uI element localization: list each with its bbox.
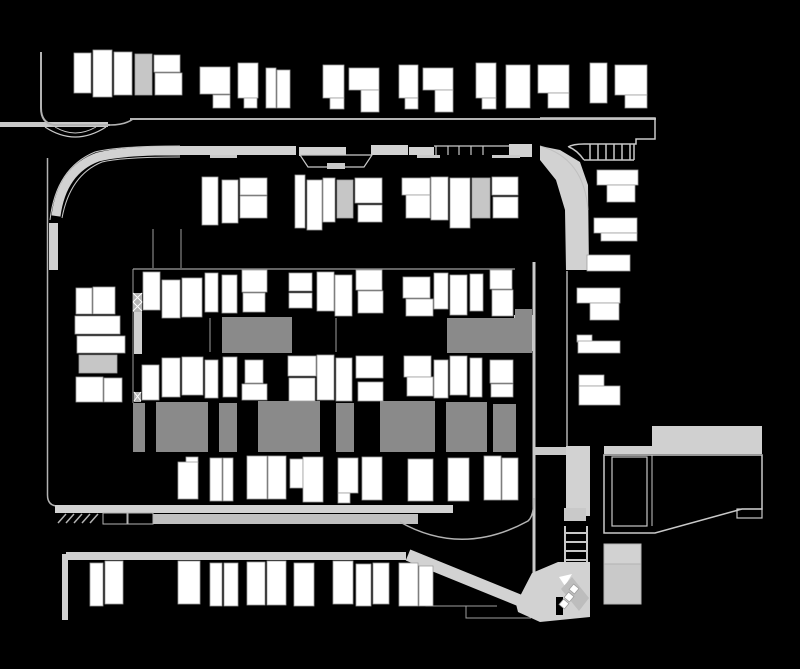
rowhouse xyxy=(223,458,233,501)
house xyxy=(597,170,638,185)
house xyxy=(607,185,635,202)
house xyxy=(538,65,569,93)
house xyxy=(178,561,200,604)
house xyxy=(75,316,120,334)
rowhouse xyxy=(403,277,430,298)
rowhouses-block-bottom xyxy=(178,456,518,503)
rowhouse xyxy=(182,357,203,395)
rowhouse xyxy=(289,273,312,291)
house xyxy=(373,563,389,604)
house xyxy=(76,288,92,314)
house xyxy=(492,177,518,195)
steps-header-block xyxy=(564,508,586,521)
east-plaza-arm xyxy=(604,446,652,454)
block-low-1 xyxy=(133,403,145,452)
sidewalk-seg-1 xyxy=(180,146,266,155)
house xyxy=(577,288,620,303)
rowhouse xyxy=(289,293,312,308)
house-gray-unit xyxy=(79,355,117,373)
house xyxy=(238,63,258,98)
rowhouse xyxy=(247,456,267,499)
house-gray-unit xyxy=(472,178,490,218)
house xyxy=(579,375,604,386)
rowhouse xyxy=(317,355,334,400)
block-mid-1 xyxy=(222,317,292,353)
block-low-3 xyxy=(219,403,237,452)
sidewalk-seg-2 xyxy=(266,146,296,155)
block-mid-2 xyxy=(447,318,515,353)
house xyxy=(615,65,647,95)
house xyxy=(267,561,286,605)
house xyxy=(406,195,430,218)
house xyxy=(307,180,322,230)
house xyxy=(349,68,379,90)
rowhouse xyxy=(404,356,431,377)
house xyxy=(266,68,276,108)
house xyxy=(590,303,619,320)
house xyxy=(222,180,238,223)
rowhouse xyxy=(491,384,513,397)
rowhouse xyxy=(205,360,218,398)
house xyxy=(506,65,530,108)
house xyxy=(90,563,103,606)
house xyxy=(361,90,379,112)
house xyxy=(358,205,382,222)
rowhouse xyxy=(356,270,382,290)
house xyxy=(210,563,222,606)
road-bottom-band-2 xyxy=(153,514,418,524)
block-low-2 xyxy=(156,402,208,452)
road-right-connector xyxy=(533,447,566,455)
sidewalk-bit-1 xyxy=(210,155,237,158)
house xyxy=(482,98,496,109)
house xyxy=(590,63,607,103)
house xyxy=(594,218,637,233)
rowhouse xyxy=(178,462,198,499)
rowhouse xyxy=(358,291,383,313)
house xyxy=(399,563,418,606)
rowhouse xyxy=(434,273,448,309)
rowhouse xyxy=(335,275,352,316)
rowhouse xyxy=(210,458,222,501)
house xyxy=(154,55,180,72)
rowhouses-block-row2 xyxy=(142,355,513,401)
rowhouse xyxy=(450,275,467,315)
sidewalk-seg-5 xyxy=(409,147,434,155)
rowhouse xyxy=(303,457,323,502)
east-pad-upper xyxy=(604,544,641,564)
block-low-8 xyxy=(493,404,516,452)
rowhouse xyxy=(490,270,512,289)
house xyxy=(277,70,290,108)
house-gray-unit xyxy=(135,54,152,95)
rowhouse xyxy=(356,356,383,378)
rowhouse xyxy=(358,382,383,401)
rowhouse xyxy=(450,356,467,395)
sidewalk-bit-3 xyxy=(492,155,520,158)
house xyxy=(601,233,637,241)
house xyxy=(587,255,630,271)
house xyxy=(93,50,112,97)
rowhouse xyxy=(243,293,265,312)
rowhouse xyxy=(242,384,267,400)
house xyxy=(76,377,103,402)
rowhouse xyxy=(434,360,448,398)
house xyxy=(323,178,335,222)
rowhouse xyxy=(162,280,180,318)
house xyxy=(419,566,433,606)
house xyxy=(294,563,314,606)
house xyxy=(431,177,448,220)
east-pad-lower xyxy=(604,564,641,604)
block-low-7 xyxy=(446,402,487,452)
rowhouse xyxy=(492,290,513,316)
rowhouse xyxy=(242,270,267,292)
house xyxy=(399,65,418,98)
house xyxy=(213,95,230,108)
rowhouse xyxy=(288,356,316,376)
rowhouse xyxy=(407,377,433,396)
site-plan-figure xyxy=(0,0,800,669)
house xyxy=(323,65,344,98)
house xyxy=(330,98,344,109)
house xyxy=(74,53,91,93)
sidewalk-bit-2 xyxy=(417,155,440,158)
block-low-5 xyxy=(336,403,354,452)
rowhouse xyxy=(289,378,315,401)
house xyxy=(333,561,353,604)
house xyxy=(435,90,453,112)
rowhouse xyxy=(182,278,202,317)
entrance-tab xyxy=(327,163,345,169)
house xyxy=(625,95,647,108)
house xyxy=(355,178,382,203)
site-plan-canvas xyxy=(0,0,800,669)
rowhouse xyxy=(142,365,159,400)
road-bottom-band-1 xyxy=(55,505,453,513)
house xyxy=(405,98,418,109)
rowhouse xyxy=(448,458,469,501)
rowhouse xyxy=(162,358,180,397)
house xyxy=(104,378,122,402)
house xyxy=(476,63,496,98)
rowhouse xyxy=(484,456,501,500)
house xyxy=(579,386,620,405)
rowhouse xyxy=(290,459,303,488)
rowhouse xyxy=(362,457,382,500)
house xyxy=(240,196,267,218)
house xyxy=(240,178,267,195)
house xyxy=(423,68,453,90)
house xyxy=(244,98,257,108)
block-low-4 xyxy=(258,401,320,452)
block-xbox-strip xyxy=(134,312,142,354)
east-plaza-rect xyxy=(652,426,762,454)
sidewalk-seg-4 xyxy=(371,145,408,155)
rowhouse xyxy=(490,360,513,383)
rowhouse xyxy=(470,358,482,397)
rowhouse xyxy=(408,459,433,501)
house xyxy=(295,175,305,228)
rowhouse xyxy=(205,273,218,312)
house xyxy=(93,287,115,314)
rowhouse xyxy=(143,272,160,310)
rowhouse xyxy=(317,272,334,311)
house xyxy=(224,563,238,606)
rowhouse xyxy=(223,357,237,397)
house xyxy=(356,564,371,606)
rowhouse xyxy=(338,458,358,493)
road-bottom-left-leg xyxy=(62,554,68,620)
house xyxy=(202,177,218,225)
block-mid-2-ext xyxy=(515,309,532,353)
house xyxy=(402,178,430,195)
house xyxy=(200,67,230,94)
rowhouse xyxy=(336,358,352,401)
left-boundary-band xyxy=(49,223,58,270)
house xyxy=(548,93,569,108)
house xyxy=(247,562,265,605)
house xyxy=(105,561,123,604)
road-bottom-band-3 xyxy=(66,552,406,560)
road-right-band-low xyxy=(566,446,590,516)
rowhouse xyxy=(245,360,263,383)
house xyxy=(493,197,518,218)
rowhouse xyxy=(268,456,286,499)
house xyxy=(77,336,125,353)
rowhouse xyxy=(406,299,433,316)
block-low-6 xyxy=(380,401,435,452)
rowhouse xyxy=(502,458,518,500)
rowhouse xyxy=(338,493,350,503)
house xyxy=(155,73,182,95)
house xyxy=(114,52,132,95)
house-gray-unit xyxy=(337,180,353,218)
rowhouse xyxy=(470,274,483,311)
rowhouse xyxy=(222,275,237,313)
house xyxy=(450,178,470,228)
house xyxy=(578,341,620,353)
